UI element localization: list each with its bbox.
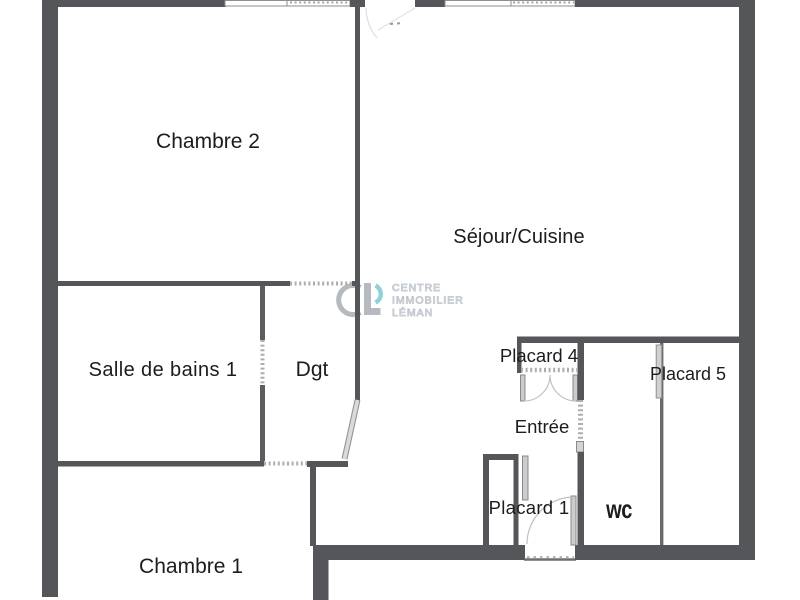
svg-text:Placard 1: Placard 1 (489, 497, 570, 518)
svg-text:Chambre 1: Chambre 1 (139, 555, 243, 578)
svg-text:LÉMAN: LÉMAN (392, 306, 433, 319)
svg-text:Placard 4: Placard 4 (500, 345, 578, 366)
svg-text:wc: wc (605, 495, 632, 524)
svg-text:Salle de bains 1: Salle de bains 1 (89, 359, 238, 381)
svg-text:Entrée: Entrée (515, 416, 570, 437)
svg-text:CENTRE: CENTRE (392, 282, 441, 294)
svg-text:Placard 5: Placard 5 (650, 364, 726, 384)
svg-text:Chambre 2: Chambre 2 (156, 130, 260, 153)
svg-text:Dgt: Dgt (296, 358, 329, 381)
svg-text:Séjour/Cuisine: Séjour/Cuisine (453, 226, 584, 248)
svg-text:IMMOBILIER: IMMOBILIER (392, 295, 464, 307)
